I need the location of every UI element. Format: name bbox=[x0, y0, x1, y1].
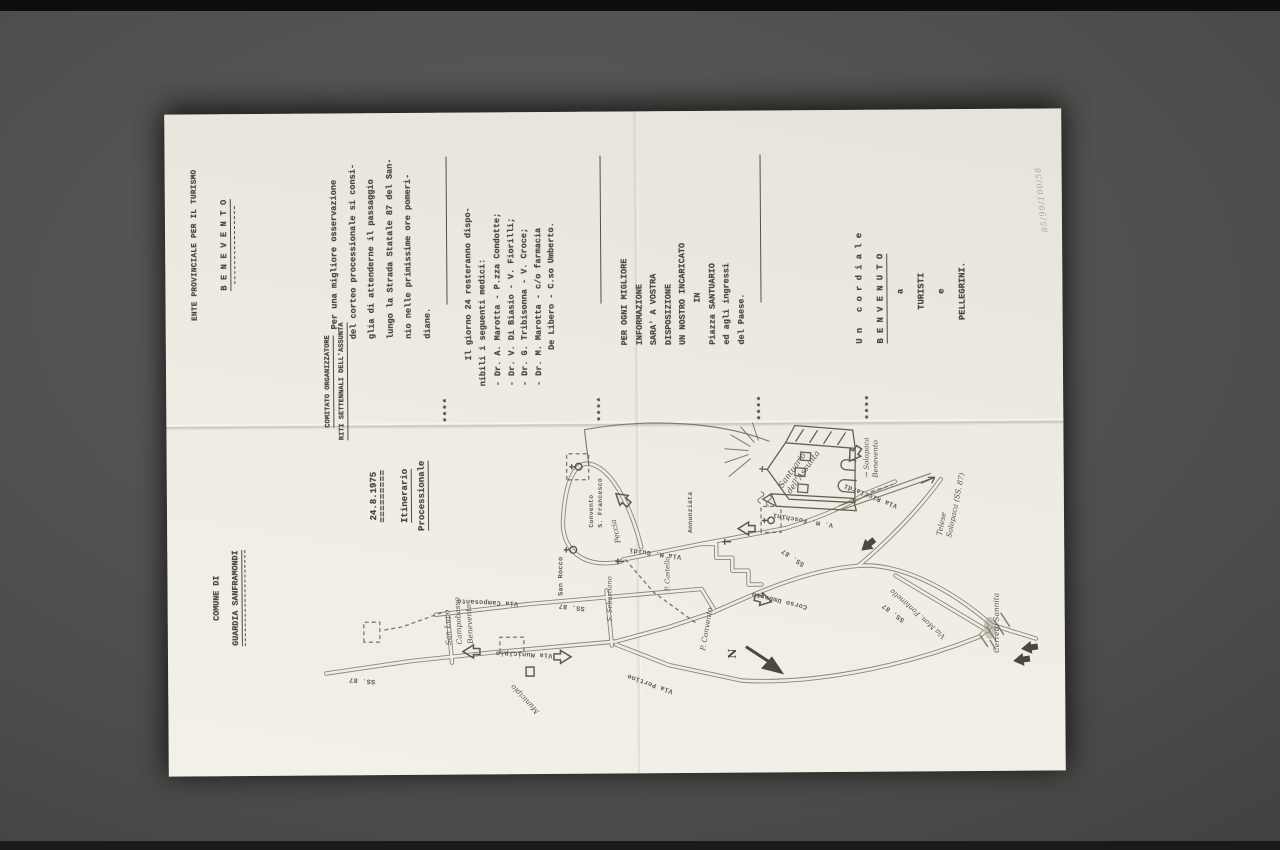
info-line: INFORMAZIONE bbox=[631, 165, 647, 345]
welcome-block: U n c o r d i a l e B E N V E N U T O a … bbox=[849, 173, 973, 344]
map-label-convento: Convento S. Francesco bbox=[587, 478, 605, 528]
processional-route-map: SS. 87 San Lupo Campobasso Benevento Via… bbox=[322, 396, 1054, 749]
info-line: ed agli ingressi bbox=[719, 165, 735, 345]
photo-top-shadow bbox=[0, 0, 1280, 11]
info-line: Piazza SANTUARIO bbox=[704, 165, 720, 345]
map-label-annunziata: Annunziata bbox=[687, 492, 694, 533]
letterhead-ente: ENTE PROVINCIALE PER IL TURISMO B E N E … bbox=[191, 166, 236, 324]
info-line: IN bbox=[690, 165, 706, 303]
folded-leaflet: COMUNE DI GUARDIA SANFRAMONDI COMITATO O… bbox=[164, 108, 1066, 776]
doctors-intro: Il giorno 24 resteranno dispo- nibili i … bbox=[460, 151, 490, 386]
ente-line1: ENTE PROVINCIALE PER IL TURISMO bbox=[191, 166, 200, 324]
info-line: UN NOSTRO INCARICATO bbox=[675, 165, 691, 345]
welcome-benvenuto: B E N V E N U T O bbox=[875, 254, 888, 344]
exit-arrow bbox=[921, 477, 935, 483]
photo-bottom-shadow bbox=[0, 841, 1280, 850]
doctors-block: Il giorno 24 resteranno dispo- nibili i … bbox=[460, 151, 559, 387]
info-block: PER OGNI MIGLIORE INFORMAZIONE SARA' A V… bbox=[617, 165, 750, 346]
map-label-san-rocco: San Rocco bbox=[557, 556, 565, 595]
sun-rays bbox=[724, 422, 771, 506]
map-label-north: N bbox=[726, 649, 739, 659]
map-label-s-sebastiano: S. Sebastiano bbox=[605, 576, 613, 621]
photo-of-document: COMUNE DI GUARDIA SANFRAMONDI COMITATO O… bbox=[0, 0, 1280, 850]
welcome-line: PELLEGRINI. bbox=[952, 239, 973, 343]
info-line: SARA' A VOSTRA bbox=[646, 165, 662, 345]
doctor-item-cont: De Libero - C.so Umberto. bbox=[544, 151, 559, 350]
welcome-line: U n c o r d i a l e bbox=[849, 174, 871, 344]
map-label-solopaca-sign: → Solopaca Benevento bbox=[862, 437, 880, 477]
map-label-p-castello: P. Castello bbox=[663, 557, 671, 591]
info-line: del Paese. bbox=[733, 165, 749, 345]
map-drawing bbox=[322, 396, 1054, 749]
info-line: DISPOSIZIONE bbox=[660, 165, 676, 345]
info-line: PER OGNI MIGLIORE bbox=[617, 165, 633, 345]
comune-line2: GUARDIA SANFRAMONDI bbox=[230, 550, 243, 646]
welcome-line: e bbox=[931, 239, 952, 343]
separator-1: **** bbox=[441, 157, 453, 423]
separator-2: **** bbox=[594, 156, 606, 422]
north-arrow-icon bbox=[746, 646, 784, 674]
map-label-cerreto-sannita: Cerreto Sannita bbox=[992, 593, 1001, 653]
comune-line1: COMUNE DI bbox=[211, 540, 222, 656]
letterhead-comune: COMUNE DI GUARDIA SANFRAMONDI bbox=[211, 540, 246, 656]
advice-paragraph: Per una migliore osservazione del corteo… bbox=[324, 144, 436, 340]
pencil-archive-note: 85/99/100/58 bbox=[1033, 166, 1049, 232]
welcome-line: TURISTI bbox=[911, 239, 932, 343]
separator-3: **** bbox=[754, 154, 766, 420]
ente-line2: B E N E V E N T O bbox=[219, 200, 232, 291]
welcome-line: a bbox=[890, 239, 911, 343]
